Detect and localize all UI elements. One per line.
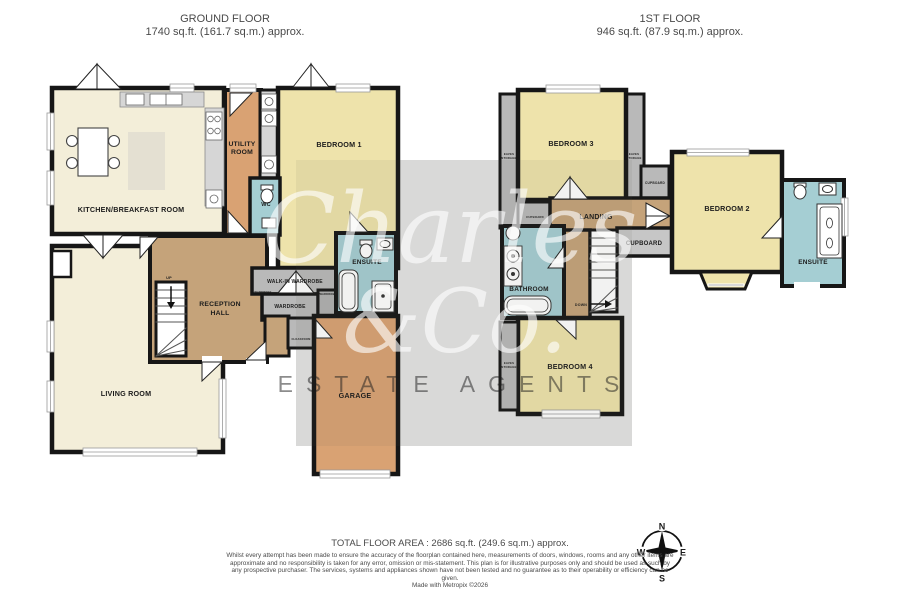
metropix-credit: Made with Metropix ©2026 xyxy=(0,582,900,590)
watermark-name-bottom: &Co. xyxy=(342,270,567,373)
hall-connector xyxy=(265,316,289,356)
toilet-icon xyxy=(794,185,806,199)
label-bedroom1: BEDROOM 1 xyxy=(316,140,361,149)
kitchen-rug xyxy=(128,132,165,190)
label-living-room: LIVING ROOM xyxy=(101,389,152,398)
label-reception-2: HALL xyxy=(211,310,230,317)
stairs-ground xyxy=(156,282,186,356)
watermark-name-top: Charles xyxy=(262,173,637,285)
label-cupboard-top: CUPBOARD xyxy=(645,181,666,185)
label-utility-2: ROOM xyxy=(231,149,253,156)
label-eaves-right-2: STORAGE xyxy=(626,156,641,160)
label-up: UP xyxy=(166,276,172,280)
floorplan-page: GROUND FLOOR 1740 sq.ft. (161.7 sq.m.) a… xyxy=(0,0,900,600)
floorplan-drawing: KITCHEN/BREAKFAST ROOM UTILITY ROOM BEDR… xyxy=(0,0,900,600)
footer: TOTAL FLOOR AREA : 2686 sq.ft. (249.6 sq… xyxy=(0,538,900,590)
label-ensuite-first: ENSUITE xyxy=(798,259,828,266)
compass-north: N xyxy=(659,522,666,532)
label-eaves-left-2: STORAGE xyxy=(501,156,516,160)
total-floor-area: TOTAL FLOOR AREA : 2686 sq.ft. (249.6 sq… xyxy=(0,538,900,549)
sink-icon xyxy=(819,183,836,195)
watermark-tagline: ESTATE AGENTS xyxy=(278,371,633,397)
label-bedroom2: BEDROOM 2 xyxy=(704,204,749,213)
label-utility-1: UTILITY xyxy=(228,141,255,148)
label-wardrobe-small-left: WARDROBE xyxy=(254,290,271,294)
disclaimer-text: Whilst every attempt has been made to en… xyxy=(224,552,676,582)
shower-icon xyxy=(817,204,842,258)
label-reception-1: RECEPTION xyxy=(199,301,240,308)
fireplace-icon xyxy=(52,251,71,277)
label-bedroom3: BEDROOM 3 xyxy=(548,139,593,148)
label-kitchen: KITCHEN/BREAKFAST ROOM xyxy=(78,205,185,214)
